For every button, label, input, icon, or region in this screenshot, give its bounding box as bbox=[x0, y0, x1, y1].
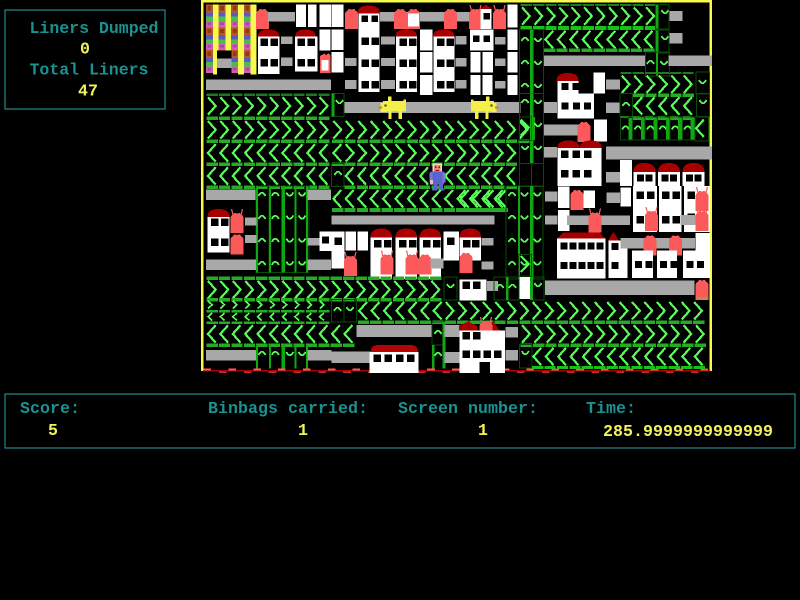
svg-text:Score:: Score: bbox=[20, 399, 80, 418]
svg-text:Time:: Time: bbox=[586, 399, 636, 418]
svg-text:5: 5 bbox=[48, 421, 58, 440]
svg-text:1: 1 bbox=[478, 421, 488, 440]
svg-text:1: 1 bbox=[298, 421, 308, 440]
svg-text:285.9999999999999: 285.9999999999999 bbox=[603, 422, 773, 441]
svg-text:Total Liners: Total Liners bbox=[30, 61, 149, 80]
svg-text:Liners Dumped: Liners Dumped bbox=[30, 19, 159, 38]
svg-text:47: 47 bbox=[78, 82, 98, 101]
svg-text:Binbags carried:: Binbags carried: bbox=[208, 399, 368, 418]
svg-text:Screen number:: Screen number: bbox=[398, 399, 538, 418]
svg-text:0: 0 bbox=[80, 40, 90, 59]
